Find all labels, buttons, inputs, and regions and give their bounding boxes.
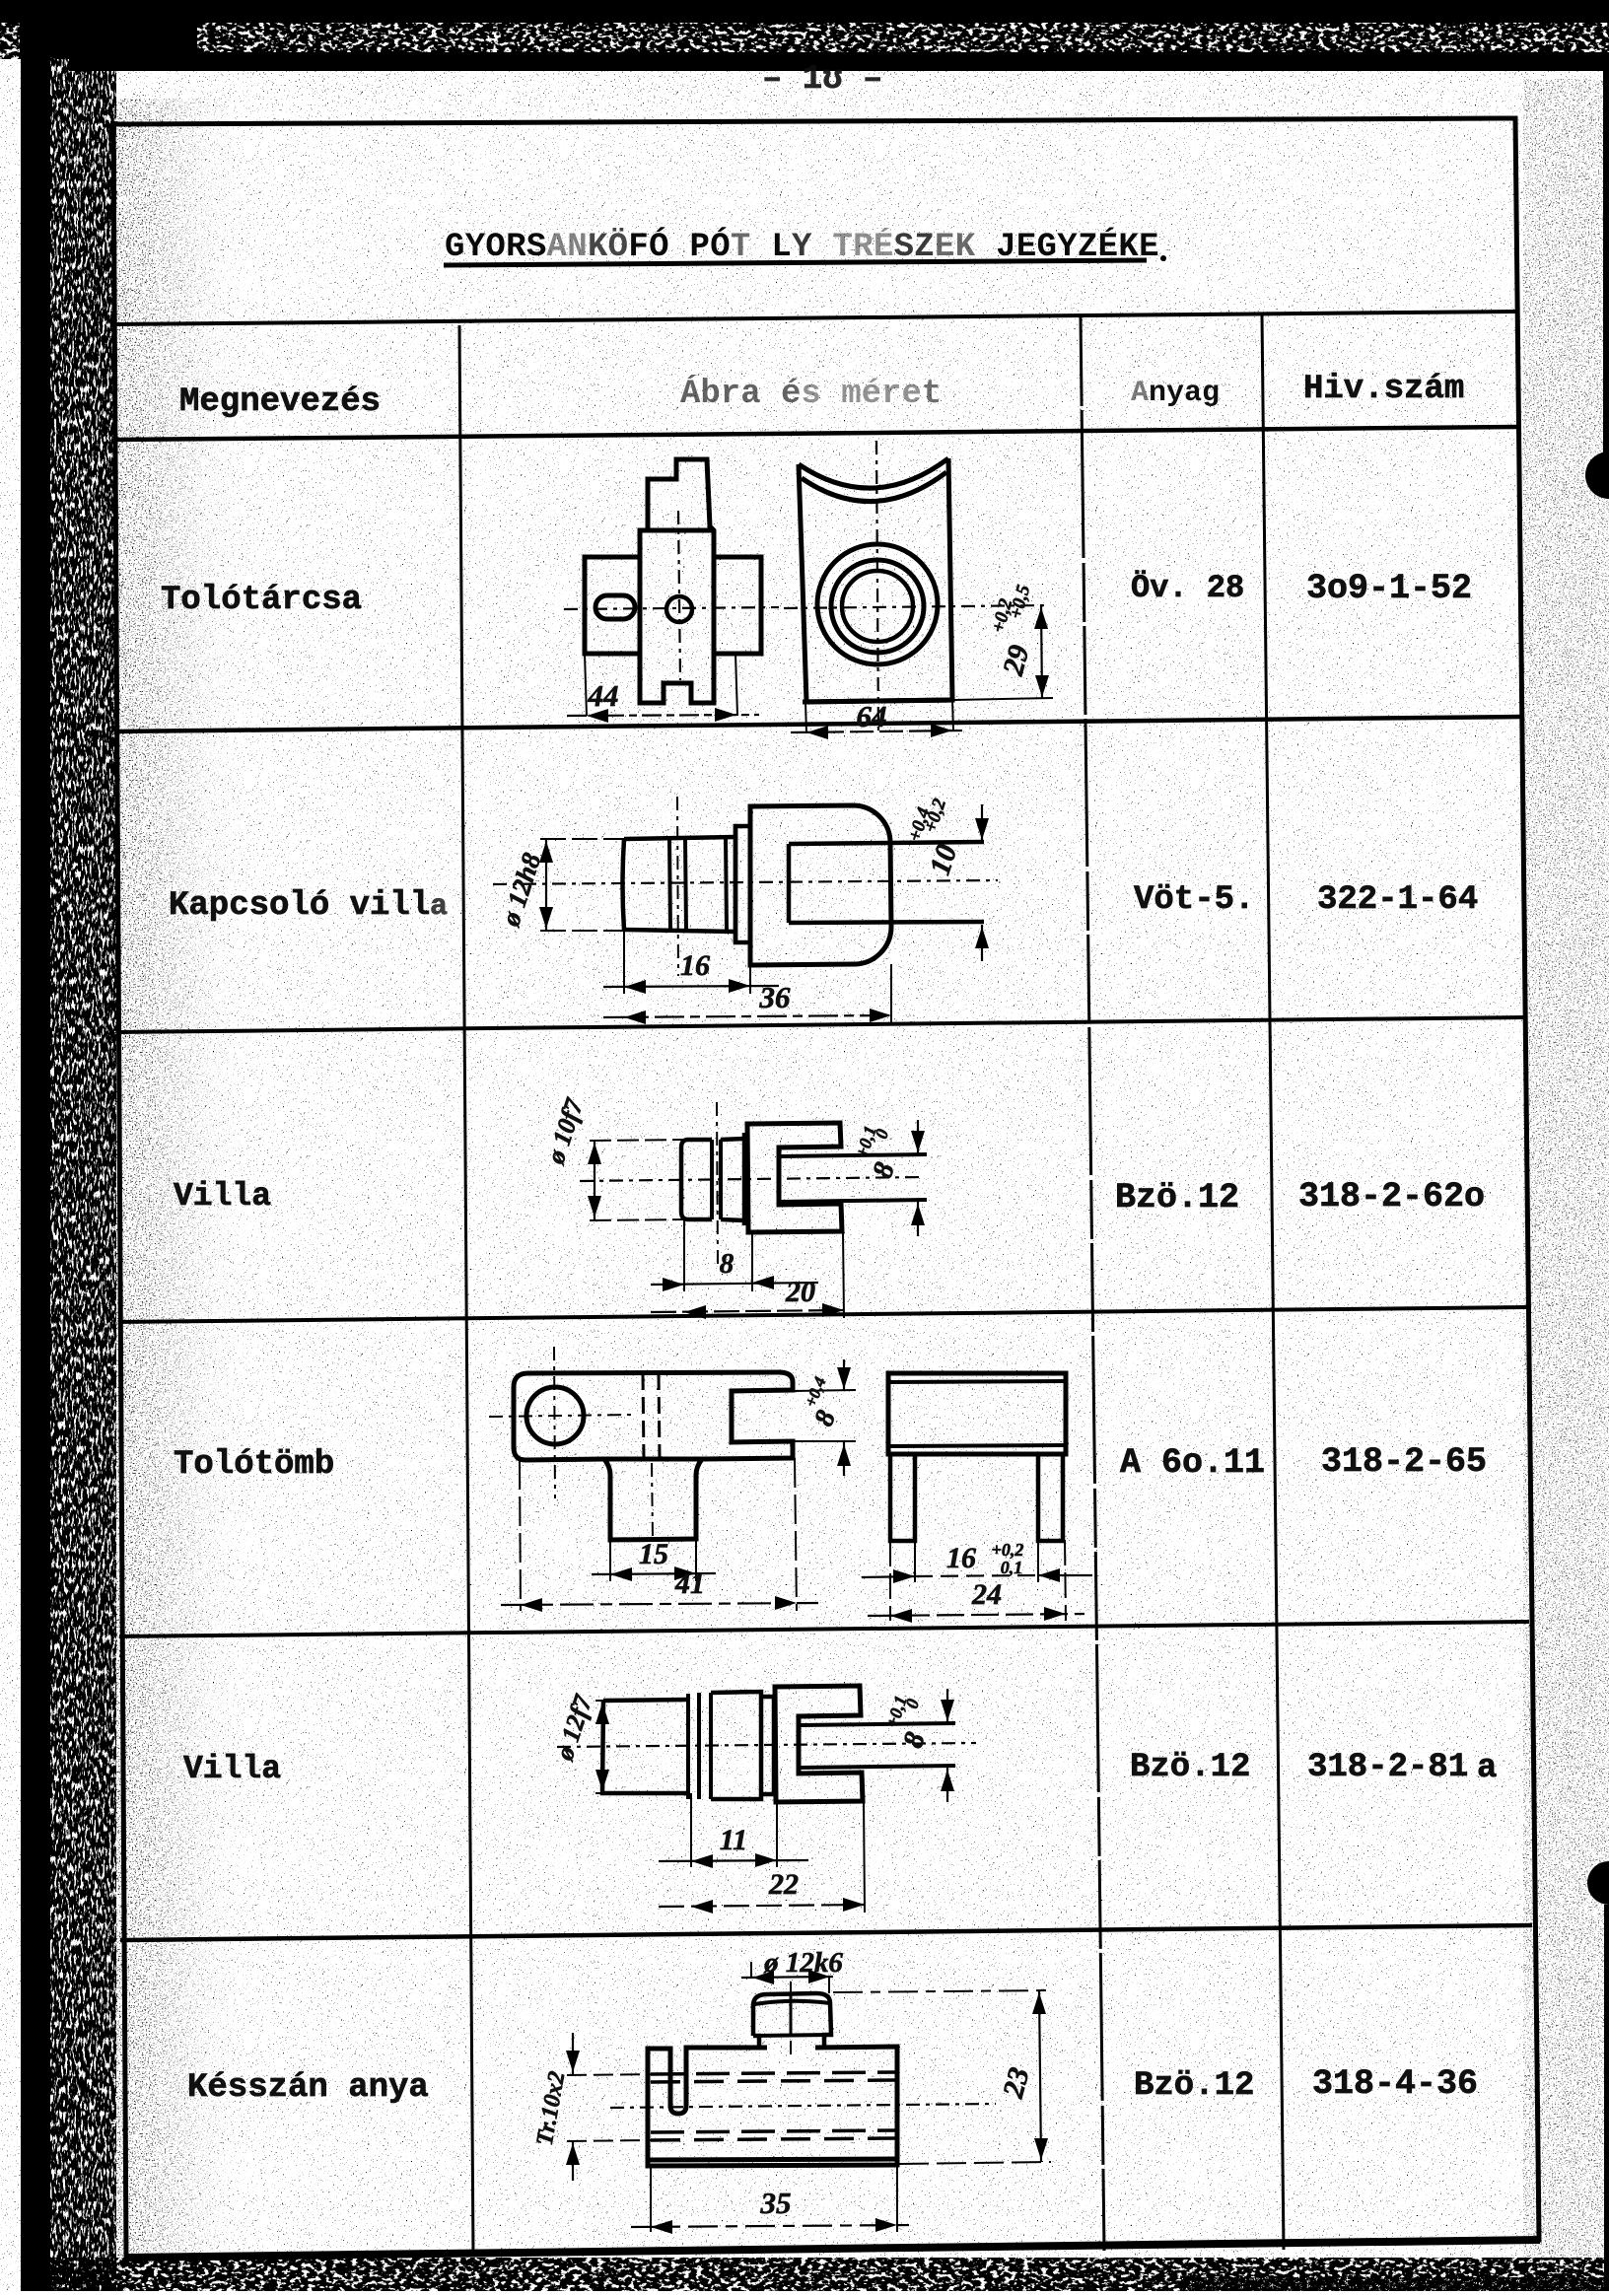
svg-text:24: 24 bbox=[971, 1578, 1002, 1611]
svg-text:44: 44 bbox=[588, 678, 619, 713]
svg-text:a: a bbox=[430, 890, 448, 924]
svg-text:– 1ʊ –: – 1ʊ – bbox=[762, 61, 882, 99]
svg-text:41: 41 bbox=[674, 1567, 705, 1600]
svg-text:Anyag: Anyag bbox=[1131, 377, 1220, 410]
svg-text:0,1: 0,1 bbox=[1001, 1558, 1023, 1577]
svg-text:8: 8 bbox=[720, 1248, 735, 1280]
svg-text:322-1-64: 322-1-64 bbox=[1317, 881, 1478, 919]
svg-text:3o9-1-52: 3o9-1-52 bbox=[1306, 569, 1472, 608]
svg-text:Villa: Villa bbox=[174, 1178, 271, 1215]
svg-text:Ábra és méret: Ábra és méret bbox=[680, 375, 942, 413]
svg-text:11: 11 bbox=[720, 1824, 747, 1856]
svg-text:318-4-36: 318-4-36 bbox=[1312, 2064, 1478, 2104]
svg-text:Bzö.12: Bzö.12 bbox=[1115, 1178, 1239, 1218]
svg-text:Villa: Villa bbox=[183, 1751, 281, 1787]
svg-text:Késszán anya: Késszán anya bbox=[187, 2069, 429, 2107]
svg-text:Tolótömb: Tolótömb bbox=[174, 1446, 334, 1484]
svg-text:A 6o.11: A 6o.11 bbox=[1120, 1443, 1265, 1483]
svg-text:318-2-62o: 318-2-62o bbox=[1298, 1177, 1485, 1217]
svg-text:a: a bbox=[1477, 1750, 1497, 1787]
svg-text:+0,2: +0,2 bbox=[992, 1540, 1024, 1560]
svg-text:ø 12k6: ø 12k6 bbox=[763, 1947, 843, 1979]
svg-text:318-2-81: 318-2-81 bbox=[1307, 1749, 1468, 1786]
svg-text:20: 20 bbox=[785, 1276, 815, 1308]
svg-text:Bzö.12: Bzö.12 bbox=[1134, 2067, 1254, 2105]
svg-text:Kapcsoló vill: Kapcsoló vill bbox=[169, 887, 430, 925]
svg-text:64: 64 bbox=[857, 699, 887, 733]
svg-text:36: 36 bbox=[759, 980, 792, 1014]
svg-text:15: 15 bbox=[639, 1538, 668, 1570]
svg-text:Öv. 28: Öv. 28 bbox=[1131, 570, 1244, 606]
svg-text:16: 16 bbox=[680, 949, 710, 982]
svg-text:Hiv.szám: Hiv.szám bbox=[1303, 371, 1464, 408]
svg-text:Tolótárcsa: Tolótárcsa bbox=[161, 582, 362, 619]
svg-text:35: 35 bbox=[760, 2186, 792, 2220]
svg-text:318-2-65: 318-2-65 bbox=[1321, 1442, 1487, 1482]
svg-text:16: 16 bbox=[946, 1542, 976, 1574]
svg-text:Bzö.12: Bzö.12 bbox=[1130, 1749, 1250, 1786]
svg-text:22: 22 bbox=[768, 1868, 799, 1901]
svg-text:Megnevezés: Megnevezés bbox=[179, 383, 381, 421]
svg-text:Vöt-5.: Vöt-5. bbox=[1134, 881, 1254, 919]
